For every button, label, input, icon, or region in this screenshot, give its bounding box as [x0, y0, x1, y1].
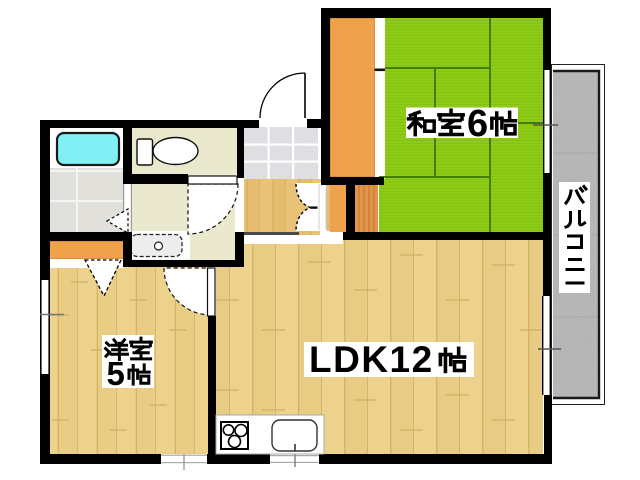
svg-text:5: 5: [107, 355, 125, 392]
svg-text:6: 6: [467, 103, 488, 145]
svg-text:LDK12: LDK12: [309, 339, 434, 380]
